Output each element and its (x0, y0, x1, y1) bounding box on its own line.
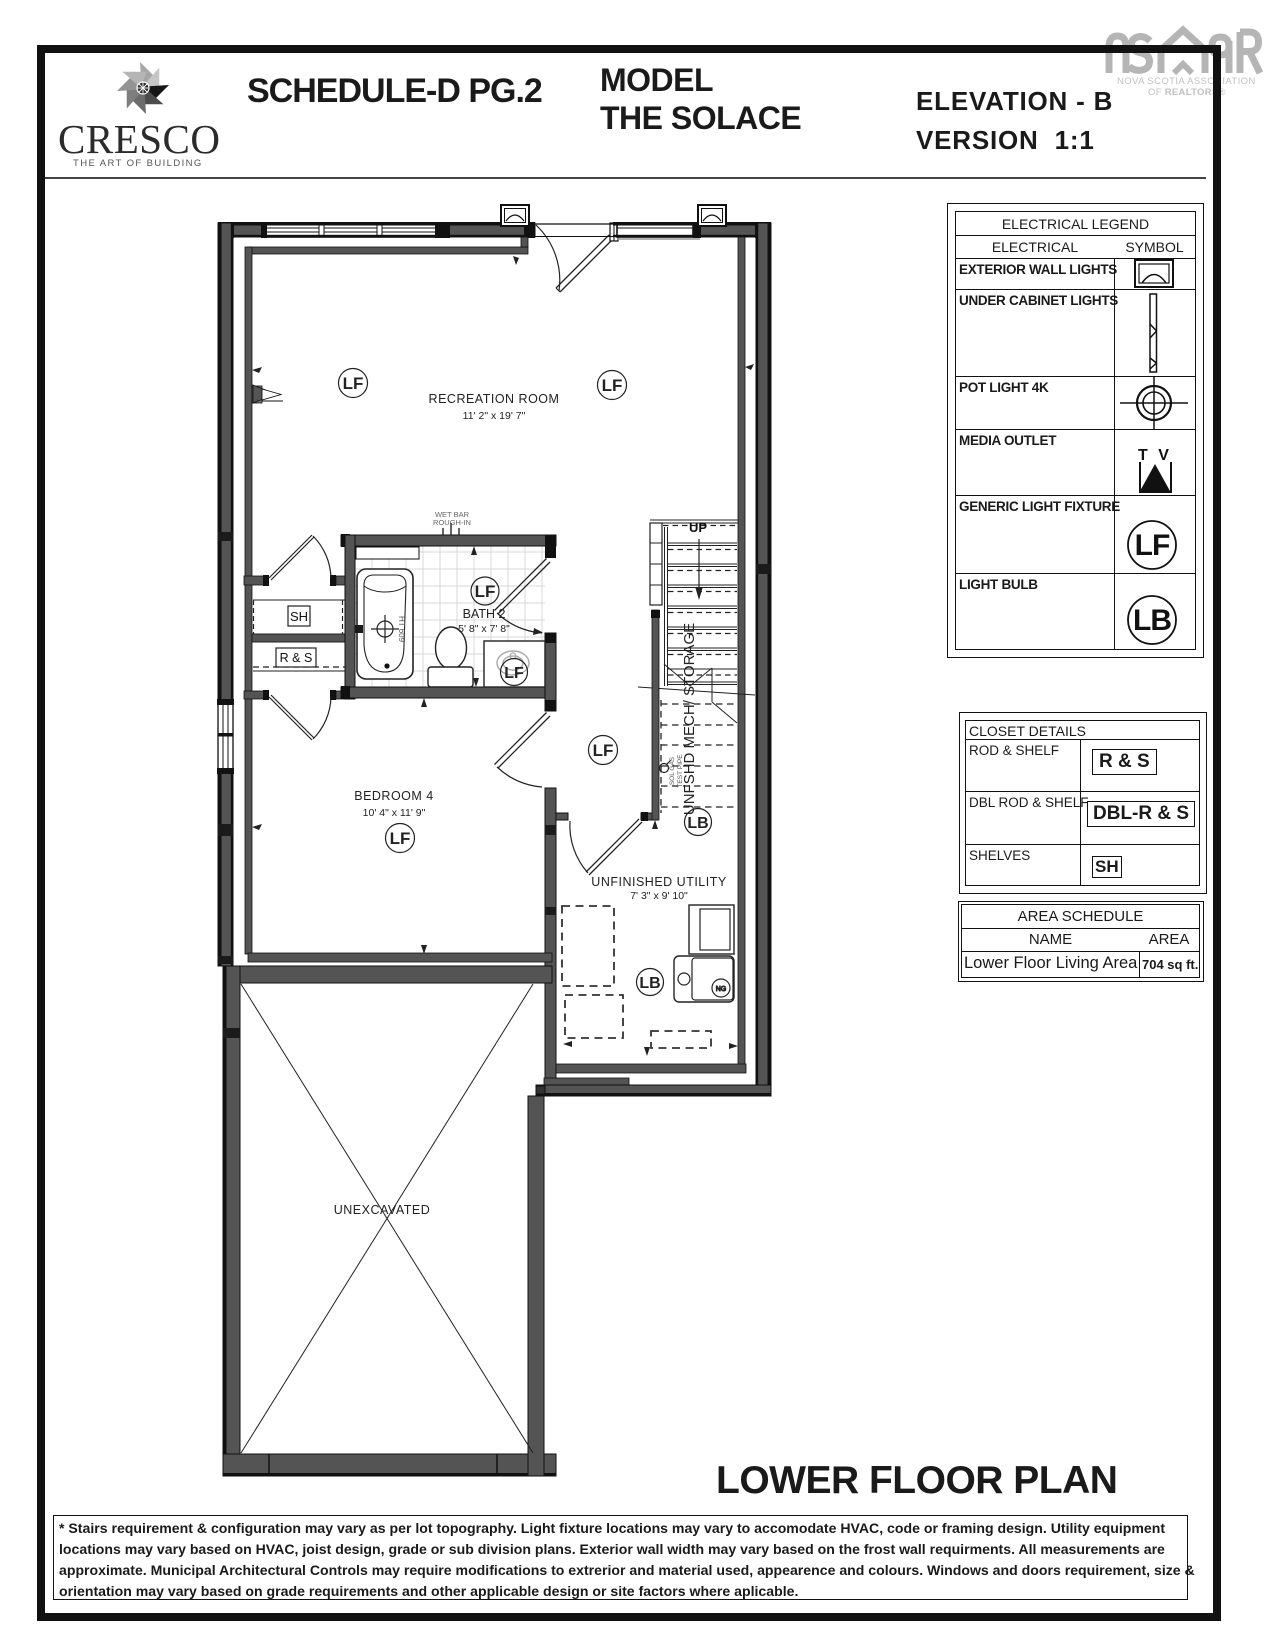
svg-text:LB: LB (687, 815, 708, 832)
svg-text:LF: LF (602, 376, 623, 395)
svg-text:LF: LF (1135, 529, 1170, 562)
svg-text:HT 609: HT 609 (397, 616, 406, 643)
svg-text:BATH 2: BATH 2 (463, 607, 506, 621)
svg-text:BEDROOM 4: BEDROOM 4 (354, 789, 434, 803)
svg-text:UP: UP (689, 520, 707, 535)
svg-text:LF: LF (390, 829, 411, 848)
svg-text:10' 4" x 11' 9": 10' 4" x 11' 9" (363, 807, 426, 819)
svg-text:UNFINISHED UTILITY: UNFINISHED UTILITY (591, 875, 727, 889)
svg-text:LF: LF (593, 741, 614, 760)
svg-text:SOL GAS: SOL GAS (669, 756, 676, 785)
svg-text:LF: LF (343, 374, 364, 393)
svg-text:LB: LB (639, 975, 660, 992)
svg-text:T V: T V (1138, 447, 1172, 464)
svg-text:SH: SH (290, 609, 308, 624)
svg-text:R & S: R & S (280, 651, 313, 665)
svg-text:ROUGH-IN: ROUGH-IN (433, 518, 471, 527)
svg-text:UNEXCAVATED: UNEXCAVATED (334, 1203, 431, 1217)
svg-text:TEST PIPE: TEST PIPE (677, 754, 684, 788)
svg-text:LF: LF (475, 582, 496, 601)
svg-text:LF: LF (504, 665, 524, 682)
svg-text:RECREATION ROOM: RECREATION ROOM (429, 392, 560, 406)
svg-text:NG: NG (716, 986, 727, 993)
svg-text:5' 8" x 7' 8": 5' 8" x 7' 8" (458, 623, 510, 635)
svg-text:11' 2" x 19' 7": 11' 2" x 19' 7" (463, 410, 526, 422)
svg-text:7' 3" x 9' 10": 7' 3" x 9' 10" (630, 890, 688, 902)
svg-text:LB: LB (1133, 604, 1171, 637)
